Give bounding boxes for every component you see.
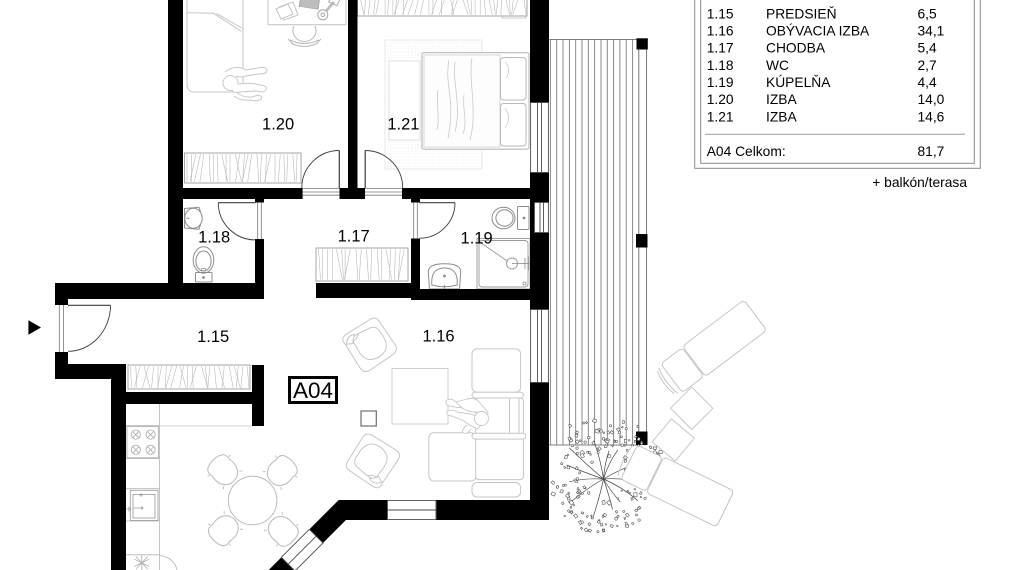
svg-text:5,4: 5,4 xyxy=(918,41,938,56)
svg-text:PREDSIEŇ: PREDSIEŇ xyxy=(766,5,837,21)
svg-text:1.17: 1.17 xyxy=(338,228,370,246)
svg-text:KÚPELŇA: KÚPELŇA xyxy=(766,74,831,90)
svg-text:OBÝVACIA IZBA: OBÝVACIA IZBA xyxy=(766,23,870,39)
svg-text:1.17: 1.17 xyxy=(707,41,734,56)
svg-text:A04 Celkom:: A04 Celkom: xyxy=(707,144,786,159)
svg-text:1.18: 1.18 xyxy=(198,229,230,247)
svg-text:WC: WC xyxy=(766,58,789,73)
svg-text:1.20: 1.20 xyxy=(707,92,734,107)
svg-text:1.19: 1.19 xyxy=(461,229,493,247)
svg-text:1.21: 1.21 xyxy=(387,115,419,133)
svg-text:1.21: 1.21 xyxy=(707,109,734,124)
svg-text:1.16: 1.16 xyxy=(707,24,734,39)
svg-text:14,0: 14,0 xyxy=(918,92,945,107)
svg-text:1.16: 1.16 xyxy=(422,328,454,346)
svg-text:34,1: 34,1 xyxy=(918,24,945,39)
svg-text:4,4: 4,4 xyxy=(918,75,938,90)
svg-text:81,7: 81,7 xyxy=(918,144,945,159)
svg-text:1.15: 1.15 xyxy=(197,328,229,346)
svg-text:1.15: 1.15 xyxy=(707,6,734,21)
svg-text:IZBA: IZBA xyxy=(766,92,797,107)
svg-text:+ balkón/terasa: + balkón/terasa xyxy=(872,175,967,190)
svg-text:IZBA: IZBA xyxy=(766,109,797,124)
svg-text:1.19: 1.19 xyxy=(707,75,734,90)
svg-text:14,6: 14,6 xyxy=(918,109,945,124)
svg-text:2,7: 2,7 xyxy=(918,58,937,73)
svg-text:1.18: 1.18 xyxy=(707,58,734,73)
svg-text:A04: A04 xyxy=(293,378,333,403)
svg-text:6,5: 6,5 xyxy=(918,6,938,21)
svg-text:1.20: 1.20 xyxy=(262,116,294,134)
svg-text:CHODBA: CHODBA xyxy=(766,41,826,56)
